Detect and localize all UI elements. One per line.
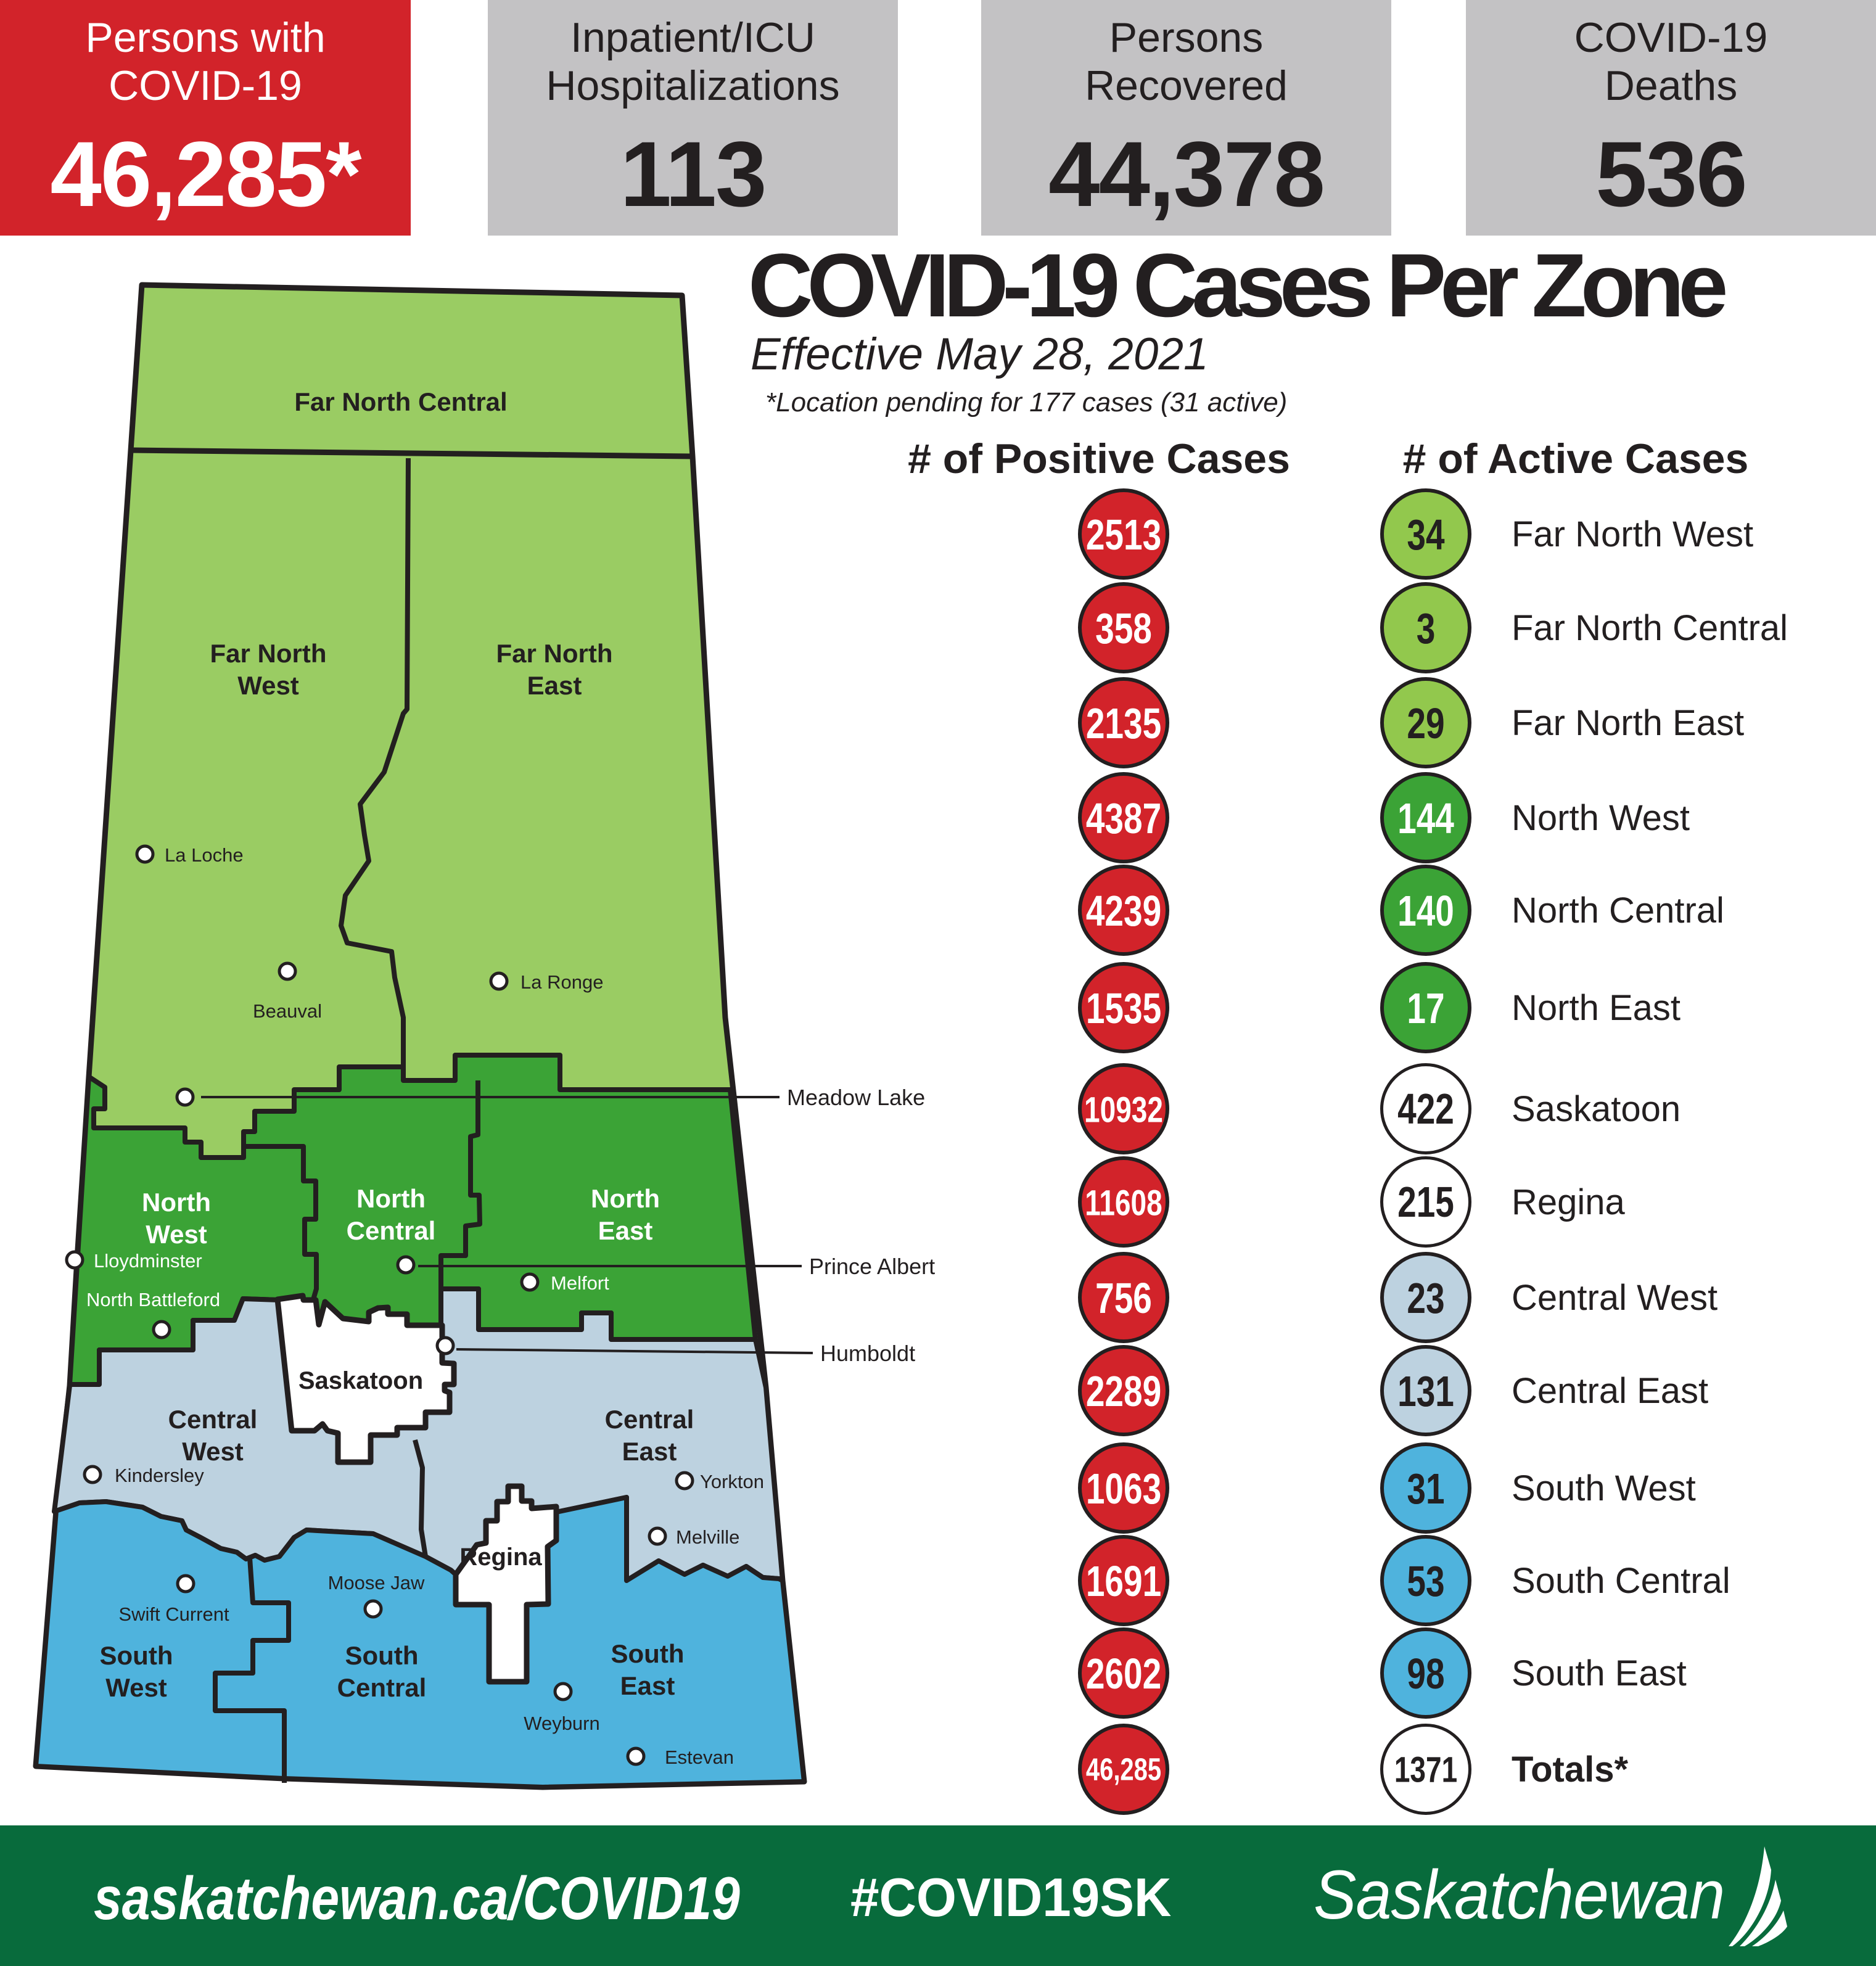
svg-text:Saskatoon: Saskatoon (298, 1367, 423, 1394)
svg-text:Humboldt: Humboldt (820, 1341, 915, 1366)
svg-text:North: North (591, 1184, 660, 1213)
svg-text:Kindersley: Kindersley (115, 1465, 204, 1486)
svg-text:Swift Current: Swift Current (118, 1603, 229, 1625)
svg-text:La Loche: La Loche (165, 844, 244, 866)
svg-text:Meadow Lake: Meadow Lake (787, 1085, 925, 1110)
svg-text:North: North (142, 1188, 211, 1217)
svg-text:Central: Central (347, 1216, 436, 1245)
svg-text:Central: Central (605, 1405, 694, 1434)
svg-text:West: West (105, 1673, 167, 1702)
svg-text:Far North Central: Far North Central (294, 387, 507, 416)
svg-text:North: North (356, 1184, 426, 1213)
svg-text:North Battleford: North Battleford (86, 1289, 220, 1310)
svg-text:West: West (237, 671, 299, 700)
svg-text:Far North: Far North (496, 639, 613, 668)
svg-text:Lloydminster: Lloydminster (94, 1250, 202, 1272)
svg-text:La Ronge: La Ronge (520, 971, 603, 993)
svg-text:West: West (182, 1437, 244, 1466)
svg-text:East: East (622, 1437, 677, 1466)
svg-text:Far North: Far North (210, 639, 327, 668)
svg-text:Beauval: Beauval (253, 1000, 322, 1022)
svg-text:East: East (527, 671, 582, 700)
svg-text:South: South (100, 1641, 173, 1670)
svg-text:Estevan: Estevan (665, 1746, 734, 1768)
svg-text:Regina: Regina (459, 1544, 542, 1571)
svg-text:West: West (146, 1220, 207, 1249)
svg-text:Melfort: Melfort (551, 1272, 609, 1294)
svg-text:Central: Central (168, 1405, 258, 1434)
svg-text:Prince Albert: Prince Albert (809, 1254, 935, 1279)
svg-text:Yorkton: Yorkton (700, 1471, 764, 1492)
svg-text:Weyburn: Weyburn (524, 1713, 600, 1734)
svg-text:Moose Jaw: Moose Jaw (328, 1572, 425, 1594)
svg-text:South: South (611, 1639, 685, 1668)
svg-text:South: South (345, 1641, 419, 1670)
svg-text:Central: Central (337, 1673, 427, 1702)
svg-text:East: East (620, 1671, 675, 1700)
svg-text:Melville: Melville (676, 1526, 739, 1548)
svg-text:East: East (598, 1216, 653, 1245)
